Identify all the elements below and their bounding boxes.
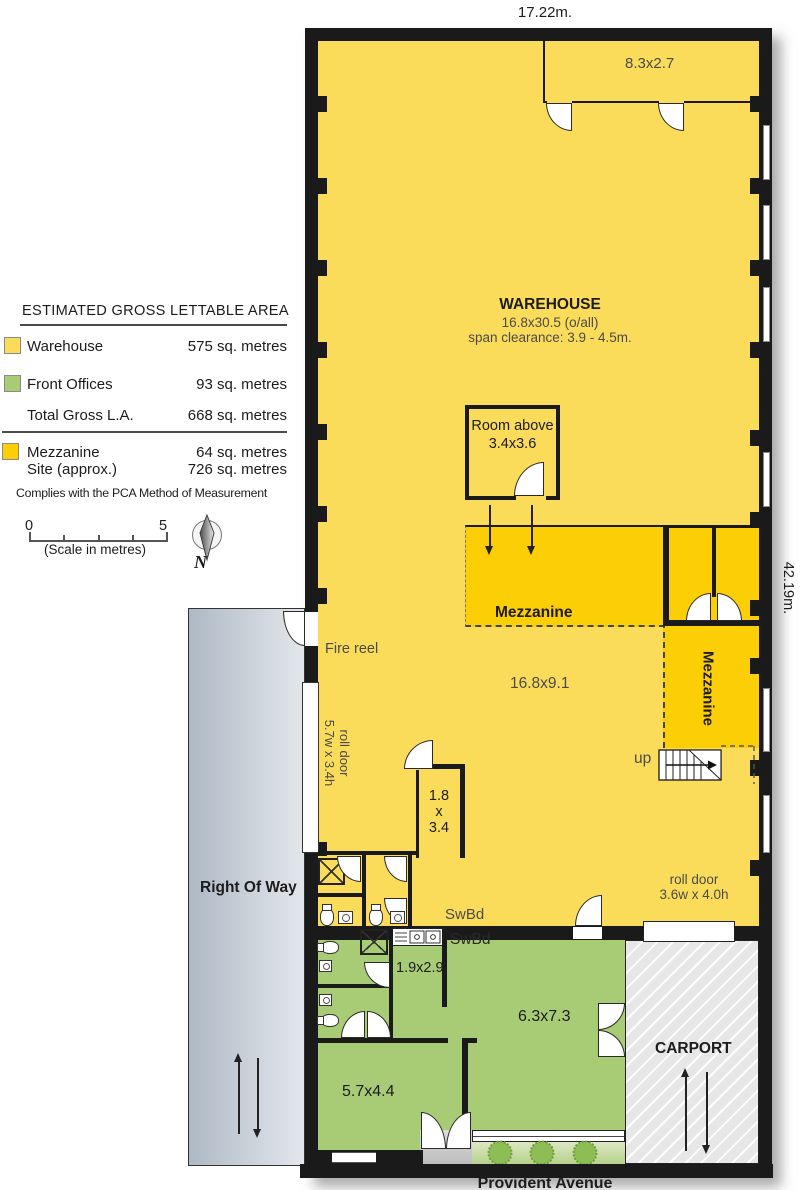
wall bbox=[543, 41, 545, 103]
column bbox=[750, 430, 759, 446]
column bbox=[318, 588, 327, 604]
legend-site-label: Site (approx.) bbox=[27, 461, 117, 478]
top-dimension: 17.22m. bbox=[490, 4, 600, 21]
roll-door-left-line1: roll door bbox=[337, 698, 352, 808]
column bbox=[750, 342, 759, 358]
scale-tick bbox=[98, 535, 100, 540]
scale-tick bbox=[132, 535, 134, 540]
garden-bushes bbox=[478, 1140, 624, 1166]
mezzanine-label: Mezzanine bbox=[495, 604, 573, 622]
window-in-wall bbox=[332, 1152, 376, 1163]
carport-label: CARPORT bbox=[655, 1040, 732, 1058]
wall-left-office bbox=[305, 940, 318, 1166]
up-label: up bbox=[634, 750, 651, 768]
floor-plan-page: ESTIMATED GROSS LETTABLE AREA Warehouse … bbox=[0, 0, 800, 1190]
legend-divider-bottom bbox=[2, 431, 287, 433]
basin-icon bbox=[319, 960, 332, 972]
column bbox=[318, 260, 327, 276]
small-room-w: 1.8 bbox=[416, 788, 462, 804]
office-b-size: 5.7x4.4 bbox=[342, 1083, 394, 1101]
legend-divider-top bbox=[20, 324, 287, 326]
toilet-icon bbox=[320, 908, 334, 926]
column bbox=[750, 96, 759, 112]
scale-caption: (Scale in metres) bbox=[44, 542, 146, 557]
column bbox=[750, 860, 759, 876]
kitchen-room-size: 1.9x2.9 bbox=[396, 960, 444, 976]
legend-mezzanine-label: Mezzanine bbox=[27, 444, 100, 461]
switchboard-label-office: SwBd bbox=[450, 931, 491, 949]
legend-site-value: 726 sq. metres bbox=[140, 461, 287, 478]
pointer-line bbox=[489, 505, 491, 547]
warehouse-floor-size: 16.8x9.1 bbox=[510, 675, 569, 693]
traffic-arrow-line bbox=[238, 1062, 240, 1134]
wall-right bbox=[759, 28, 772, 1178]
arrow-up-icon bbox=[681, 1068, 689, 1077]
warehouse-clearance: span clearance: 3.9 - 4.5m. bbox=[430, 330, 670, 345]
roll-door-left-line2: 5.7w x 3.4h bbox=[322, 698, 337, 808]
roll-door-right bbox=[643, 921, 735, 942]
column bbox=[318, 424, 327, 440]
legend-mezzanine-value: 64 sq. metres bbox=[140, 444, 287, 461]
basin-icon bbox=[390, 911, 405, 924]
wall bbox=[408, 851, 412, 928]
window-strip bbox=[763, 205, 770, 260]
legend-offices-label: Front Offices bbox=[27, 376, 113, 393]
warehouse-title-block: WAREHOUSE 16.8x30.5 (o/all) span clearan… bbox=[430, 296, 670, 345]
arrow-down-icon bbox=[253, 1129, 261, 1138]
wall bbox=[318, 893, 364, 897]
room-above-label: Room above 3.4x3.6 bbox=[467, 418, 558, 452]
north-label: N bbox=[194, 552, 207, 573]
column bbox=[750, 658, 759, 674]
office-floor bbox=[318, 940, 625, 1152]
roll-door-right-line1: roll door bbox=[644, 872, 744, 887]
shower-icon bbox=[360, 929, 388, 955]
wall-top bbox=[305, 28, 772, 41]
mezzanine-vertical-label: Mezzanine bbox=[700, 634, 717, 744]
wall bbox=[543, 101, 759, 103]
column bbox=[318, 506, 327, 522]
roll-door-right-label: roll door 3.6w x 4.0h bbox=[644, 872, 744, 902]
wall bbox=[318, 1038, 448, 1043]
door-opening bbox=[573, 927, 602, 939]
arrow-down-icon bbox=[702, 1145, 710, 1154]
basin-icon bbox=[338, 911, 353, 924]
scale-tick bbox=[63, 535, 65, 540]
switchboard-label-warehouse: SwBd bbox=[445, 906, 484, 923]
street-label: Provident Avenue bbox=[460, 1175, 630, 1190]
arrow-down-icon bbox=[485, 546, 493, 555]
legend: ESTIMATED GROSS LETTABLE AREA Warehouse … bbox=[0, 290, 300, 610]
traffic-arrow-line bbox=[257, 1058, 259, 1130]
warehouse-name: WAREHOUSE bbox=[430, 296, 670, 314]
roll-door-right-line2: 3.6w x 4.0h bbox=[644, 887, 744, 902]
store-room-size: 8.3x2.7 bbox=[625, 55, 674, 72]
toilet-icon bbox=[321, 941, 339, 954]
roll-door-left-label: roll door 5.7w x 3.4h bbox=[322, 698, 352, 808]
wall bbox=[362, 851, 366, 928]
wall bbox=[462, 1038, 468, 1122]
traffic-arrow-line bbox=[706, 1072, 708, 1146]
pointer-line bbox=[531, 505, 533, 547]
door-opening bbox=[305, 612, 318, 646]
legend-total-value: 668 sq. metres bbox=[140, 407, 287, 424]
window-strip bbox=[763, 795, 770, 853]
offices-swatch bbox=[4, 375, 21, 392]
window-strip bbox=[763, 125, 770, 180]
small-room-label: 1.8 x 3.4 bbox=[416, 788, 462, 836]
small-room-x: x bbox=[416, 804, 462, 820]
right-of-way-label: Right Of Way bbox=[200, 879, 297, 897]
small-room-h: 3.4 bbox=[416, 820, 462, 836]
wall bbox=[432, 764, 464, 769]
kitchen-sink-icon bbox=[392, 928, 446, 946]
column bbox=[318, 342, 327, 358]
window-strip bbox=[763, 287, 770, 342]
traffic-arrow-line bbox=[685, 1077, 687, 1151]
wall bbox=[712, 525, 716, 597]
right-dimension: 42.19m. bbox=[780, 553, 796, 623]
scale-tick bbox=[166, 532, 168, 540]
legend-offices-value: 93 sq. metres bbox=[140, 376, 287, 393]
window-strip bbox=[763, 452, 770, 507]
room-above-line2: 3.4x3.6 bbox=[467, 436, 558, 452]
warehouse-swatch bbox=[4, 337, 21, 354]
column bbox=[750, 512, 759, 528]
office-a-size: 6.3x7.3 bbox=[518, 1008, 570, 1026]
window-strip bbox=[763, 688, 770, 752]
column bbox=[318, 178, 327, 194]
wall bbox=[318, 851, 418, 855]
toilet-icon bbox=[369, 908, 383, 926]
fire-reel-label: Fire reel bbox=[325, 641, 378, 657]
wall bbox=[663, 620, 759, 626]
column bbox=[750, 178, 759, 194]
column bbox=[750, 600, 759, 616]
legend-warehouse-value: 575 sq. metres bbox=[140, 338, 287, 355]
wall bbox=[462, 1038, 477, 1043]
roll-door-left bbox=[302, 682, 319, 853]
basin-icon bbox=[319, 994, 332, 1006]
scale-tick bbox=[29, 532, 31, 540]
legend-title: ESTIMATED GROSS LETTABLE AREA bbox=[22, 303, 289, 319]
arrow-up-icon bbox=[234, 1053, 242, 1062]
column bbox=[750, 260, 759, 276]
legend-total-label: Total Gross L.A. bbox=[27, 407, 134, 424]
arrow-down-icon bbox=[527, 546, 535, 555]
column bbox=[318, 96, 327, 112]
legend-warehouse-label: Warehouse bbox=[27, 338, 103, 355]
toilet-icon bbox=[321, 1014, 339, 1027]
stairs-icon bbox=[656, 742, 760, 786]
wall bbox=[663, 525, 669, 626]
mezzanine-swatch bbox=[2, 443, 19, 460]
room-above-line1: Room above bbox=[467, 418, 558, 434]
warehouse-size: 16.8x30.5 (o/all) bbox=[430, 315, 670, 330]
pca-compliance-note: Complies with the PCA Method of Measurem… bbox=[16, 486, 267, 500]
